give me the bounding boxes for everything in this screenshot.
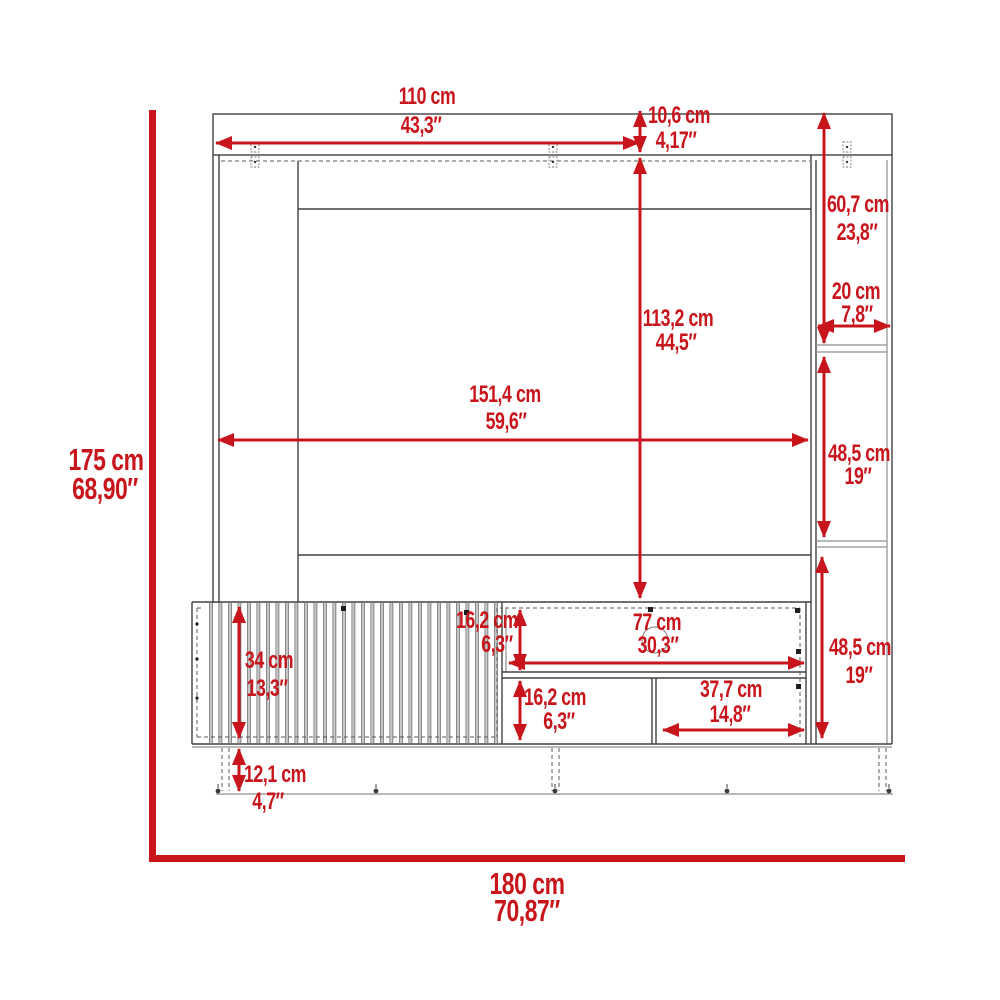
upper-shelf-height-inch-label: 6,3″ [481, 632, 513, 658]
legs-height-cm-label: 12,1 cm [244, 762, 306, 788]
lower-shelf-width-cm-label: 37,7 cm [700, 677, 762, 703]
top-height-inch-label: 4,17″ [656, 128, 697, 154]
tower-lower-cm-label: 48,5 cm [829, 635, 891, 661]
upper-shelf-width-inch-label: 30,3″ [638, 633, 679, 659]
overall-width-inch-label: 70,87″ [494, 893, 560, 928]
legs-height-inch-label: 4,7″ [252, 789, 284, 815]
lower-shelf-width-inch-label: 14,8″ [710, 702, 751, 728]
back-panel-height-cm-label: 113,2 cm [643, 306, 714, 332]
back-panel-width-inch-label: 59,6″ [486, 409, 527, 435]
tower-upper-inch-label: 23,8″ [837, 220, 878, 246]
top-width-inch-label: 43,3″ [401, 113, 442, 139]
back-panel-height-inch-label: 44,5″ [656, 330, 697, 356]
tower-lower-inch-label: 19″ [846, 663, 873, 689]
back-panel-width-cm-label: 151,4 cm [469, 382, 540, 408]
dimension-diagram-page: 175 cm 68,90″ 180 cm 70,87″ 110 cm 43,3″… [0, 0, 1000, 1000]
tower-middle-inch-label: 19″ [845, 464, 872, 490]
lower-shelf-height-inch-label: 6,3″ [543, 709, 575, 735]
top-height-cm-label: 10,6 cm [648, 103, 710, 129]
furniture-dimension-diagram: 175 cm 68,90″ 180 cm 70,87″ 110 cm 43,3″… [0, 0, 1000, 1000]
console-height-cm-label: 34 cm [245, 648, 293, 674]
overall-height-inch-label: 68,90″ [72, 471, 138, 506]
upper-shelf-height-cm-label: 16,2 cm [456, 608, 518, 634]
console-height-inch-label: 13,3″ [247, 676, 288, 702]
top-width-cm-label: 110 cm [399, 84, 456, 110]
tower-upper-cm-label: 60,7 cm [827, 192, 889, 218]
lower-shelf-height-cm-label: 16,2 cm [524, 685, 586, 711]
tower-width-inch-label: 7,8″ [841, 302, 873, 328]
